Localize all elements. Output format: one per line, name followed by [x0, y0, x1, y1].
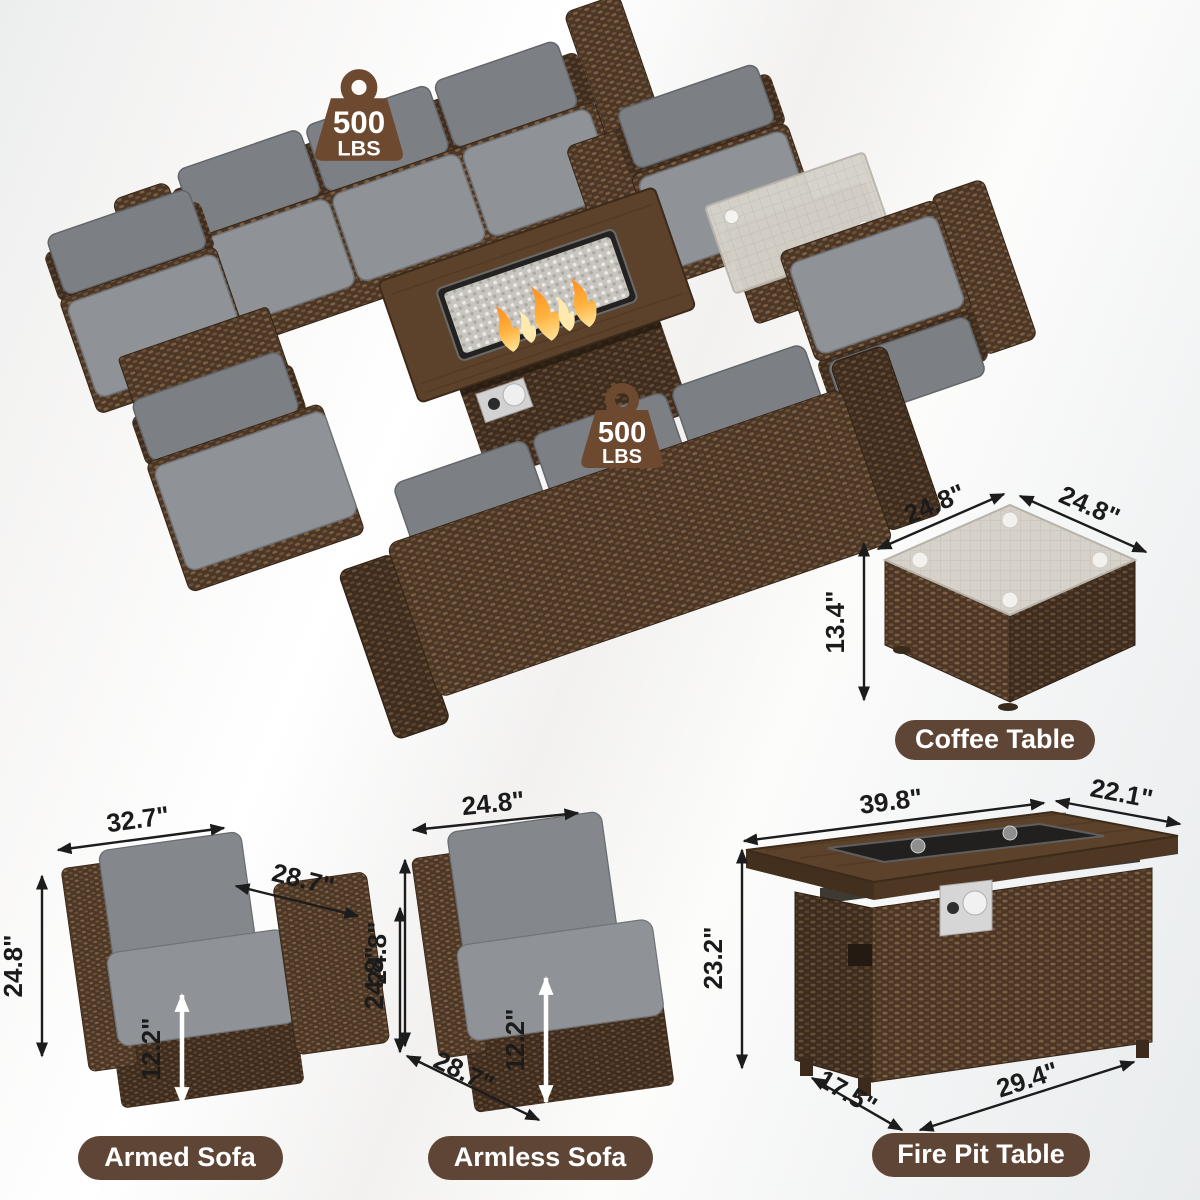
coffee-table-height-dim: 13.4" [820, 591, 850, 654]
fire-pit-label-pill: Fire Pit Table [872, 1133, 1090, 1177]
armless-sofa-height-dim: 24.8" [362, 922, 392, 985]
fire-pit-height-dim: 23.2" [698, 927, 728, 990]
diagram-svg: 500 LBS [0, 0, 1200, 1200]
coffee-table-label-pill: Coffee Table [895, 720, 1095, 760]
fire-pit-table-detail: 39.8" 22.1" 23.2" 17.5" 29.4" Fire Pit T… [698, 772, 1180, 1177]
ignition-knob [947, 902, 959, 914]
armed-sofa-width-dim: 32.7" [104, 800, 171, 838]
armed-sofa-label-pill: Armed Sofa [78, 1136, 283, 1180]
weight-unit: LBS [337, 135, 380, 160]
weight-unit: LBS [602, 446, 642, 468]
armed-sofa-label: Armed Sofa [104, 1142, 257, 1172]
vent-hole [848, 944, 872, 966]
armed-sofa-seat-height-dim: 12.2" [136, 1018, 166, 1081]
fire-pit-length-dim: 39.8" [858, 782, 924, 819]
coffee-table-label: Coffee Table [915, 724, 1075, 754]
armed-sofa-height-left-dim: 24.8" [0, 935, 28, 998]
product-dimension-diagram: 500 LBS [0, 0, 1200, 1200]
gas-knob [963, 891, 987, 915]
armless-sofa-label-pill: Armless Sofa [428, 1136, 653, 1180]
fire-pit-base-front-face [872, 868, 1152, 1082]
armless-sofa-seat-height-dim: 12.2" [500, 1009, 530, 1072]
armless-sofa-detail: 24.8" 24.8" 12.2" 28.7" Armless Sofa [362, 785, 675, 1180]
armed-sofa-detail: 32.7" 28.7" 24.8" 24.8" 12.2" Armed Sofa [0, 800, 400, 1180]
fire-pit-base-left-face [795, 892, 872, 1082]
weight-icon-handle [346, 74, 372, 100]
fire-pit-label: Fire Pit Table [897, 1139, 1065, 1169]
coffee-table-top-right-dim: 24.8" [1055, 479, 1125, 532]
armless-sofa-width-dim: 24.8" [460, 785, 526, 821]
weight-value: 500 [598, 417, 646, 449]
weight-capacity-badge: 500 LBS [315, 74, 403, 160]
armless-sofa-label: Armless Sofa [454, 1142, 628, 1172]
